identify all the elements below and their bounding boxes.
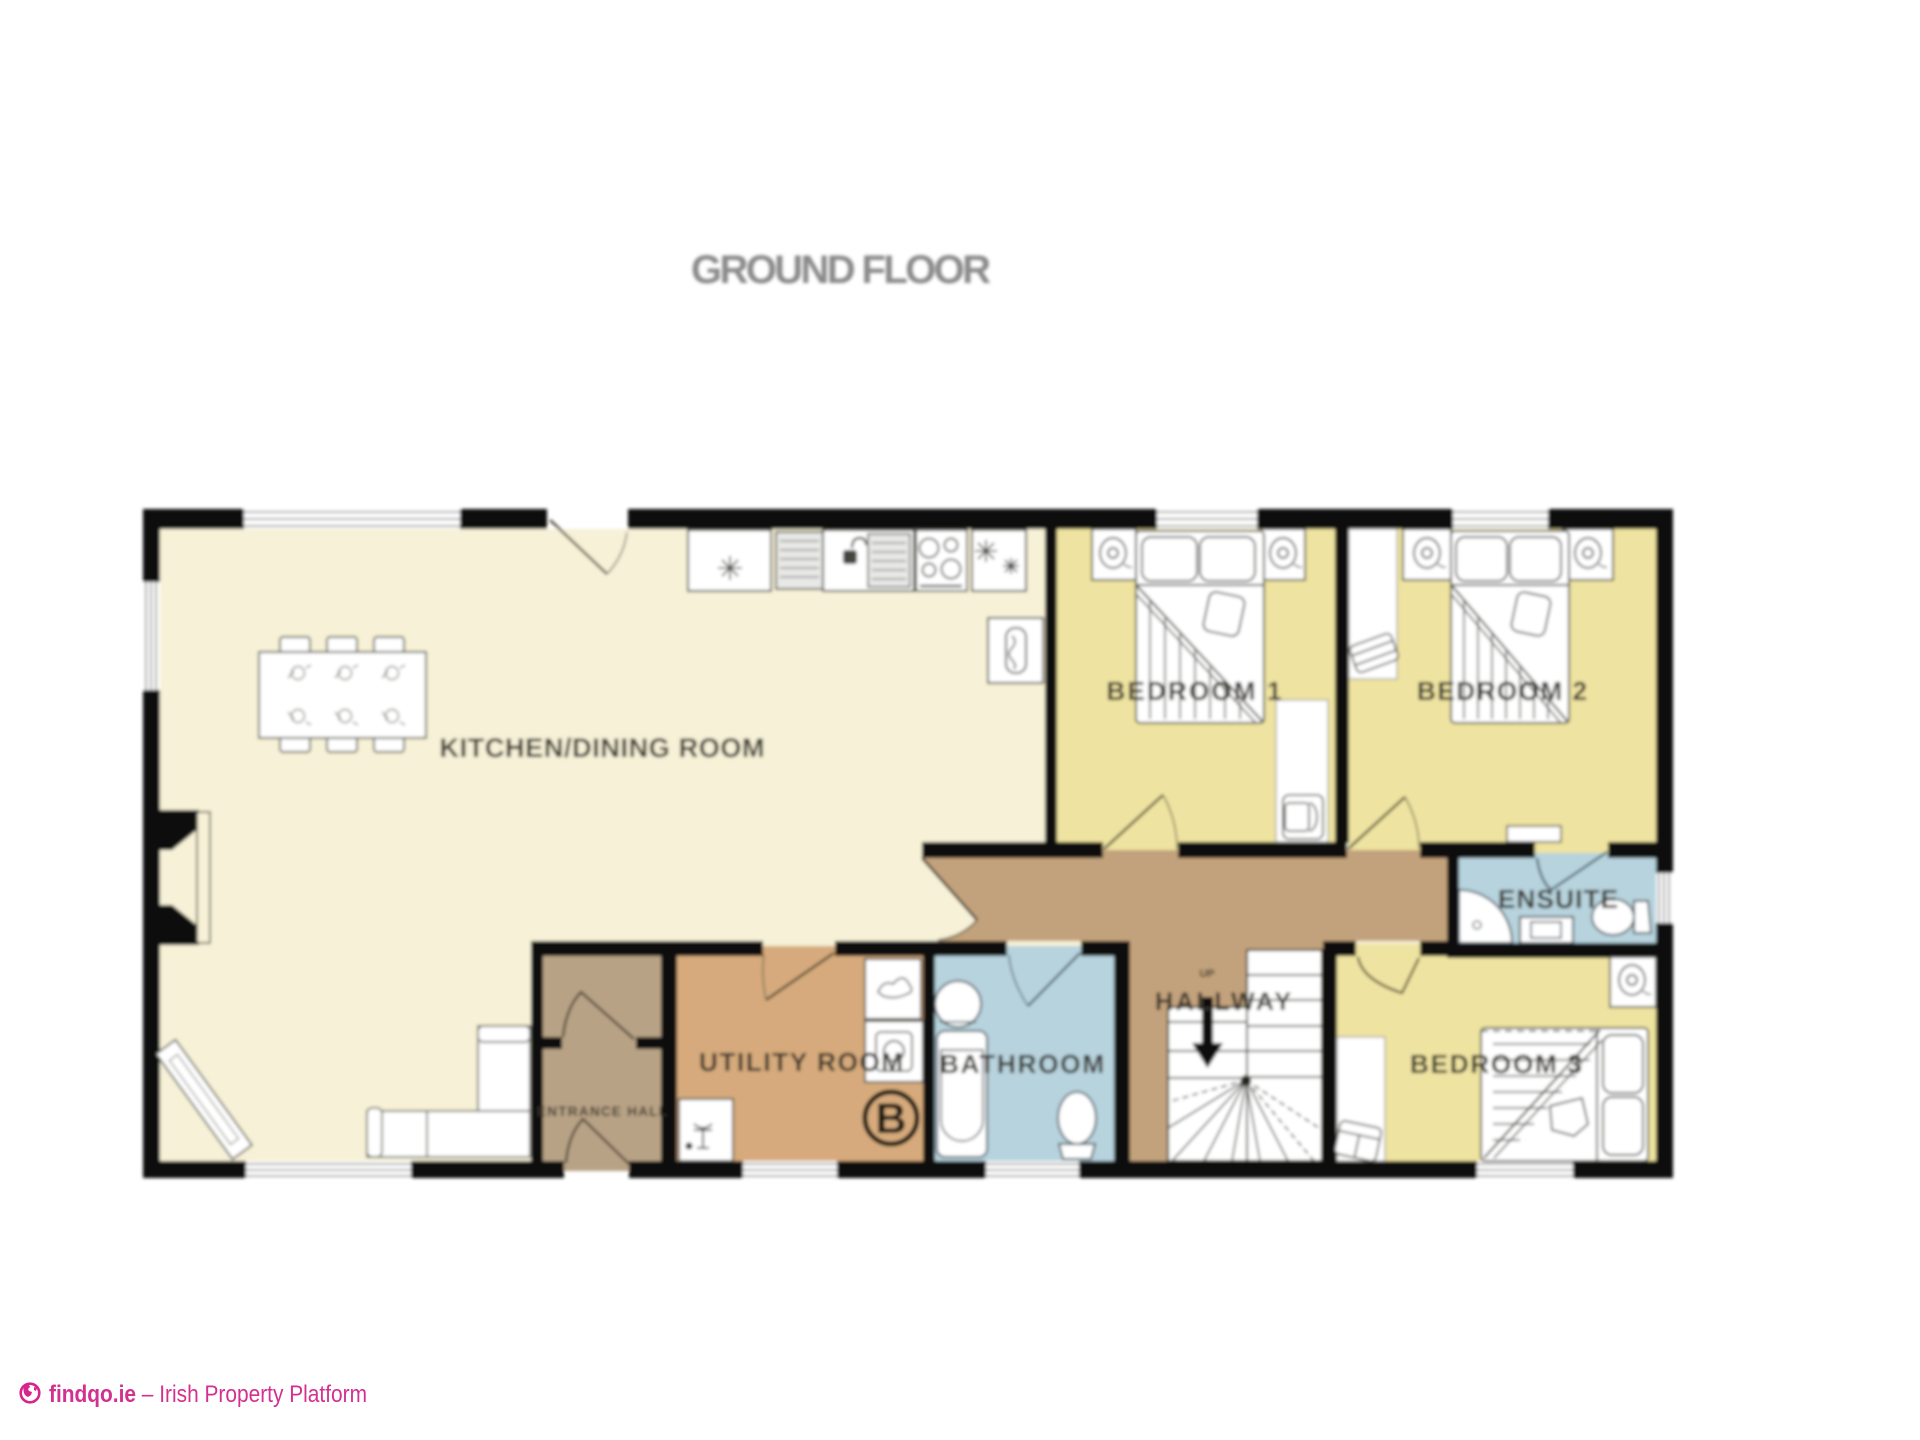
svg-text:GROUND FLOOR: GROUND FLOOR [691,248,993,292]
svg-text:UP: UP [1199,968,1214,980]
svg-text:HALLWAY: HALLWAY [1155,988,1291,1016]
svg-text:B: B [875,1095,906,1143]
svg-text:findqo.ie – Irish Property Pla: findqo.ie – Irish Property Platform [49,1381,367,1408]
svg-text:BATHROOM: BATHROOM [940,1049,1104,1079]
svg-text:ENTRANCE HALL: ENTRANCE HALL [537,1104,667,1119]
svg-text:BEDROOM 2: BEDROOM 2 [1417,676,1587,706]
svg-text:BEDROOM 3: BEDROOM 3 [1410,1049,1582,1079]
svg-text:UTILITY ROOM: UTILITY ROOM [699,1047,903,1077]
svg-text:ENSUITE: ENSUITE [1498,884,1618,914]
svg-text:KITCHEN/DINING ROOM: KITCHEN/DINING ROOM [440,733,765,763]
svg-text:BEDROOM 1: BEDROOM 1 [1107,676,1282,706]
